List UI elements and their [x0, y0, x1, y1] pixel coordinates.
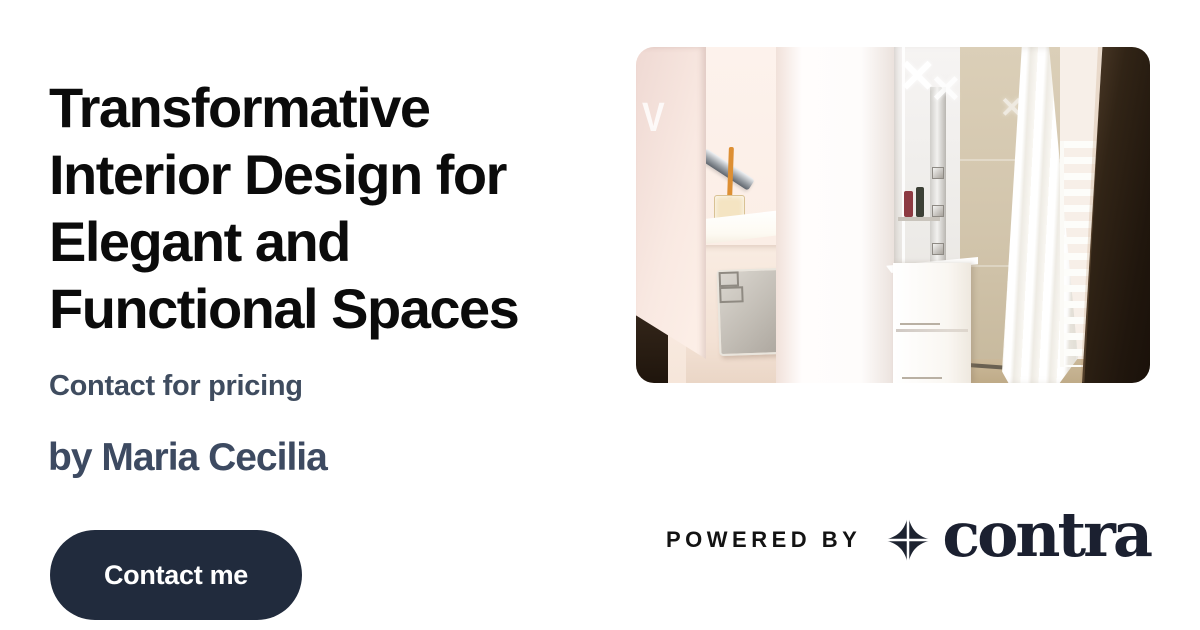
contact-me-label: Contact me [104, 560, 248, 591]
photo-flush-button-right [719, 286, 744, 303]
photo-shower-jet [932, 243, 944, 255]
title-line-1: Transformative [49, 74, 518, 141]
contact-me-button[interactable]: Contact me [50, 530, 302, 620]
pricing-label: Contact for pricing [49, 370, 303, 403]
contra-wordmark: contra [942, 504, 1150, 566]
photo-center-column [776, 47, 894, 383]
powered-by-footer: POWERED BY contra [666, 504, 1150, 576]
photo-shampoo-bottle [904, 191, 913, 217]
og-card: Transformative Interior Design for Elega… [0, 0, 1200, 630]
title-line-4: Functional Spaces [49, 275, 518, 342]
title-line-3: Elegant and [49, 208, 518, 275]
photo-shower-jet [932, 205, 944, 217]
title-line-2: Interior Design for [49, 141, 518, 208]
photo-light-reflection: ✕ [930, 67, 962, 112]
bathroom-photo: V ✕ ✕ ✕ [636, 47, 1150, 383]
photo-flush-button-left [719, 271, 740, 287]
photo-mirror-glint: V [642, 95, 665, 142]
contra-star-icon [883, 515, 933, 565]
byline: by Maria Cecilia [48, 436, 327, 480]
photo-shampoo-bottle [916, 187, 924, 217]
photo-vanity-handle [900, 323, 940, 325]
page-title: Transformative Interior Design for Elega… [49, 74, 518, 342]
photo-vanity-drawer-line [896, 329, 968, 332]
photo-mirror-panel [636, 47, 706, 359]
photo-shower-shelf [898, 217, 940, 221]
photo-vanity-handle [902, 377, 942, 379]
photo-shower-jet [932, 167, 944, 179]
powered-by-label: POWERED BY [666, 527, 861, 553]
